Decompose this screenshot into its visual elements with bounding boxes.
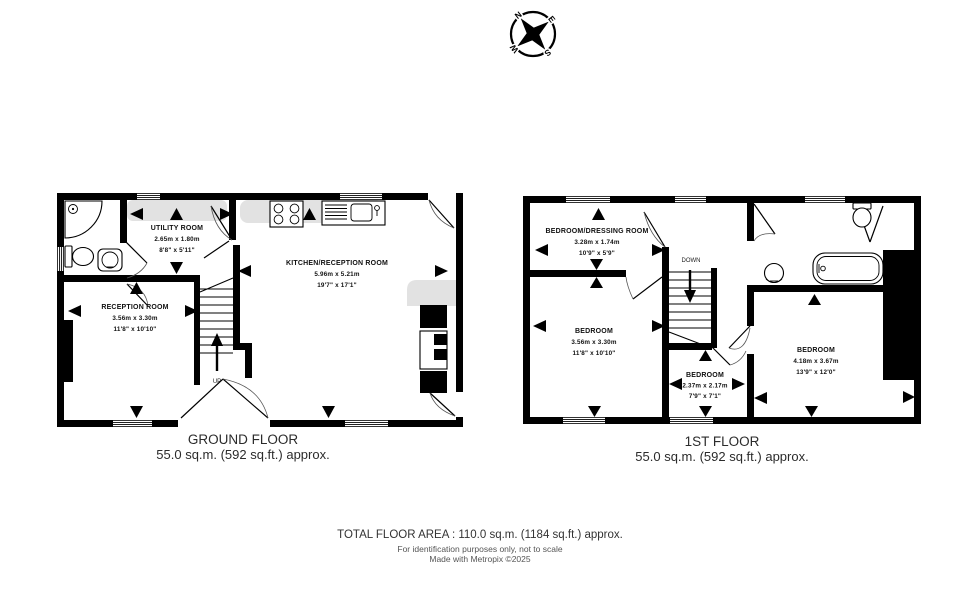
room-label-utility: UTILITY ROOM <box>151 225 203 232</box>
stairs-up: UP <box>200 278 233 385</box>
shower-icon <box>65 201 102 238</box>
disclaimer-text: For identification purposes only, not to… <box>0 544 960 554</box>
compass-n: N <box>513 9 524 21</box>
svg-text:4.18m x 3.67m: 4.18m x 3.67m <box>793 358 839 365</box>
svg-text:3.56m x 3.30m: 3.56m x 3.30m <box>112 315 158 322</box>
svg-text:3.56m x 3.30m: 3.56m x 3.30m <box>571 339 617 346</box>
fixtures <box>765 203 884 284</box>
hob-icon <box>270 201 303 227</box>
floorplan-ground-floor: UP <box>57 193 463 427</box>
first-floor-area: 55.0 sq.m. (592 sq.ft.) approx. <box>523 449 921 464</box>
kitchen-sink-icon <box>322 201 385 225</box>
svg-text:19'7" x 17'1": 19'7" x 17'1" <box>317 282 357 289</box>
room-label-kitchen: KITCHEN/RECEPTION ROOM <box>286 260 388 267</box>
svg-text:5.96m x 5.21m: 5.96m x 5.21m <box>314 271 360 278</box>
floorplan-first-floor: DOWN <box>523 196 921 424</box>
svg-text:2.65m x 1.80m: 2.65m x 1.80m <box>154 236 200 243</box>
room-label-bedroom-small: BEDROOM <box>686 372 724 379</box>
svg-text:8'8" x 5'11": 8'8" x 5'11" <box>159 247 195 254</box>
footer: TOTAL FLOOR AREA : 110.0 sq.m. (1184 sq.… <box>0 528 960 564</box>
stair-label-up: UP <box>213 379 221 385</box>
credit-text: Made with Metropix ©2025 <box>0 554 960 564</box>
ground-floor-name: GROUND FLOOR <box>40 432 446 447</box>
room-label-bedroom-main: BEDROOM <box>575 328 613 335</box>
toilet-icon <box>65 246 94 267</box>
svg-text:3.28m x 1.74m: 3.28m x 1.74m <box>574 239 620 246</box>
ground-floor-title: GROUND FLOOR 55.0 sq.m. (592 sq.ft.) app… <box>40 432 446 462</box>
toilet-icon <box>853 203 871 227</box>
svg-text:11'8" x 10'10": 11'8" x 10'10" <box>114 326 157 333</box>
doors <box>124 200 455 418</box>
svg-text:10'9" x 5'9": 10'9" x 5'9" <box>579 250 615 257</box>
room-label-bedroom-right: BEDROOM <box>797 347 835 354</box>
fireplace-block <box>420 305 447 328</box>
first-floor-name: 1ST FLOOR <box>523 434 921 449</box>
room-label-reception: RECEPTION ROOM <box>101 304 168 311</box>
svg-text:2.37m x 2.17m: 2.37m x 2.17m <box>682 383 728 390</box>
svg-text:13'9" x 12'0": 13'9" x 12'0" <box>796 369 836 376</box>
room-label-bedroom-dressing: BEDROOM/DRESSING ROOM <box>546 228 649 235</box>
floorplan-page: N E S W <box>0 0 980 593</box>
inglenook-recess <box>420 331 447 369</box>
stair-label-down: DOWN <box>682 258 701 264</box>
compass-rose: N E S W <box>502 3 564 65</box>
total-floor-area: TOTAL FLOOR AREA : 110.0 sq.m. (1184 sq.… <box>0 528 960 542</box>
svg-text:7'9" x 7'1": 7'9" x 7'1" <box>689 393 721 400</box>
chimney-block <box>883 250 914 380</box>
bathroom-sink-icon <box>765 264 784 283</box>
svg-text:11'8" x 10'10": 11'8" x 10'10" <box>573 350 616 357</box>
room-labels: BEDROOM/DRESSING ROOM 3.28m x 1.74m 10'9… <box>546 228 839 400</box>
up-arrow-head <box>211 333 223 346</box>
stairs-down: DOWN <box>669 258 711 348</box>
bathtub-icon <box>813 253 883 284</box>
ground-floor-area: 55.0 sq.m. (592 sq.ft.) approx. <box>40 447 446 462</box>
fireplace-block <box>420 371 447 393</box>
first-floor-title: 1ST FLOOR 55.0 sq.m. (592 sq.ft.) approx… <box>523 434 921 464</box>
bathroom-sink-icon <box>98 249 122 271</box>
chimney-breast <box>64 320 73 382</box>
